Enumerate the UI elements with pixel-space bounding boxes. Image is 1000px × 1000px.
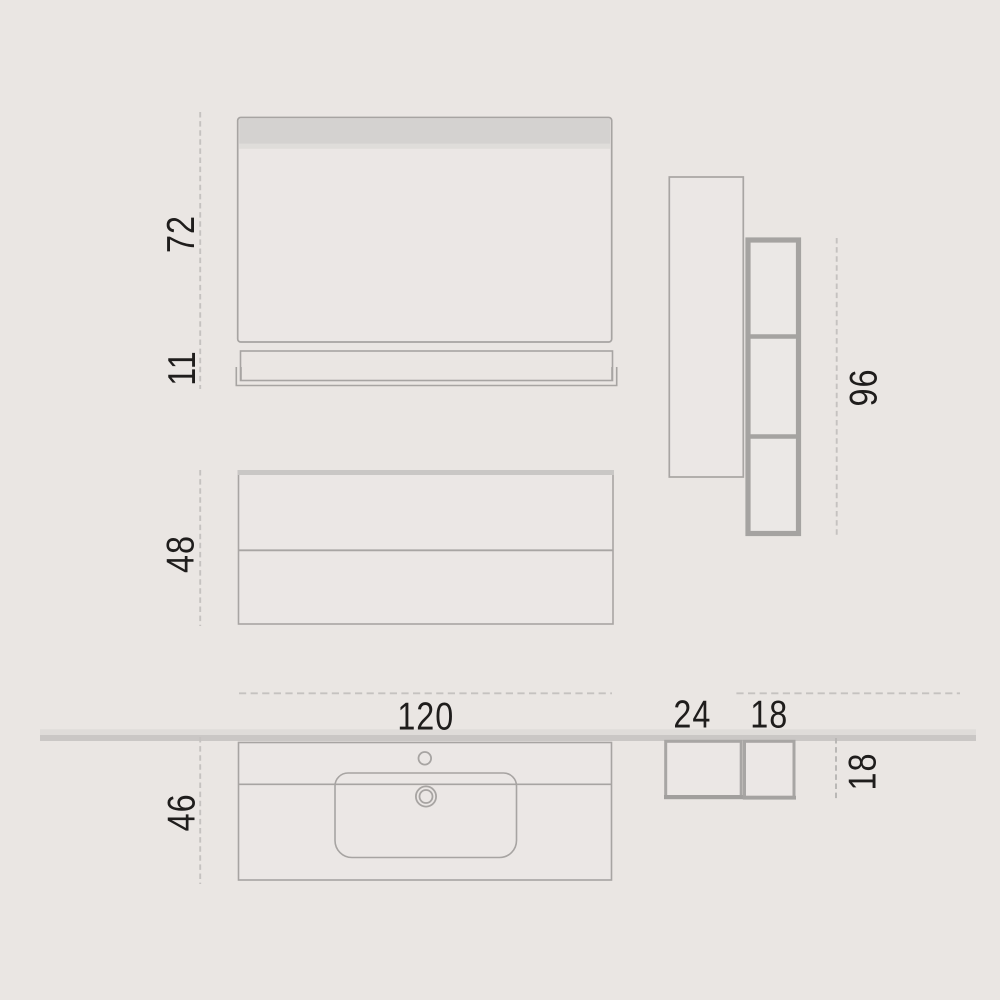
svg-text:96: 96 xyxy=(842,369,885,407)
svg-text:72: 72 xyxy=(160,215,203,253)
svg-text:11: 11 xyxy=(160,350,203,386)
svg-text:120: 120 xyxy=(397,695,454,738)
svg-text:18: 18 xyxy=(750,693,788,736)
svg-text:46: 46 xyxy=(160,793,203,831)
svg-text:48: 48 xyxy=(159,535,202,573)
svg-text:24: 24 xyxy=(673,693,711,736)
svg-text:18: 18 xyxy=(841,753,884,791)
